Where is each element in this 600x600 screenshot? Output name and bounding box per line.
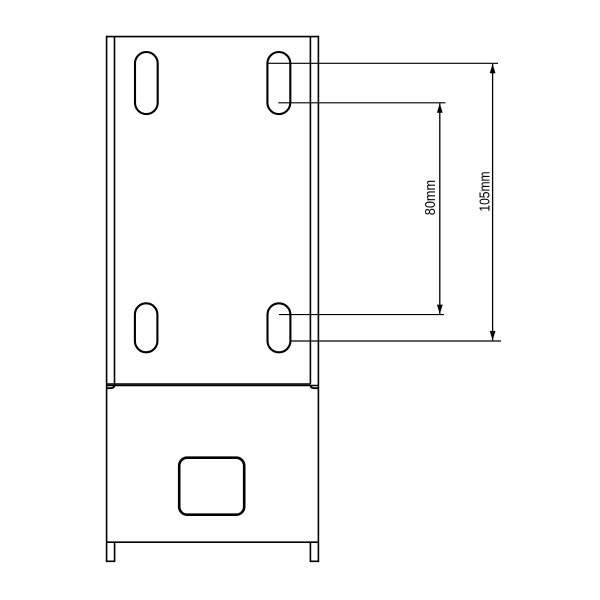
svg-text:80mm: 80mm: [423, 180, 439, 215]
svg-text:105mm: 105mm: [477, 171, 493, 211]
